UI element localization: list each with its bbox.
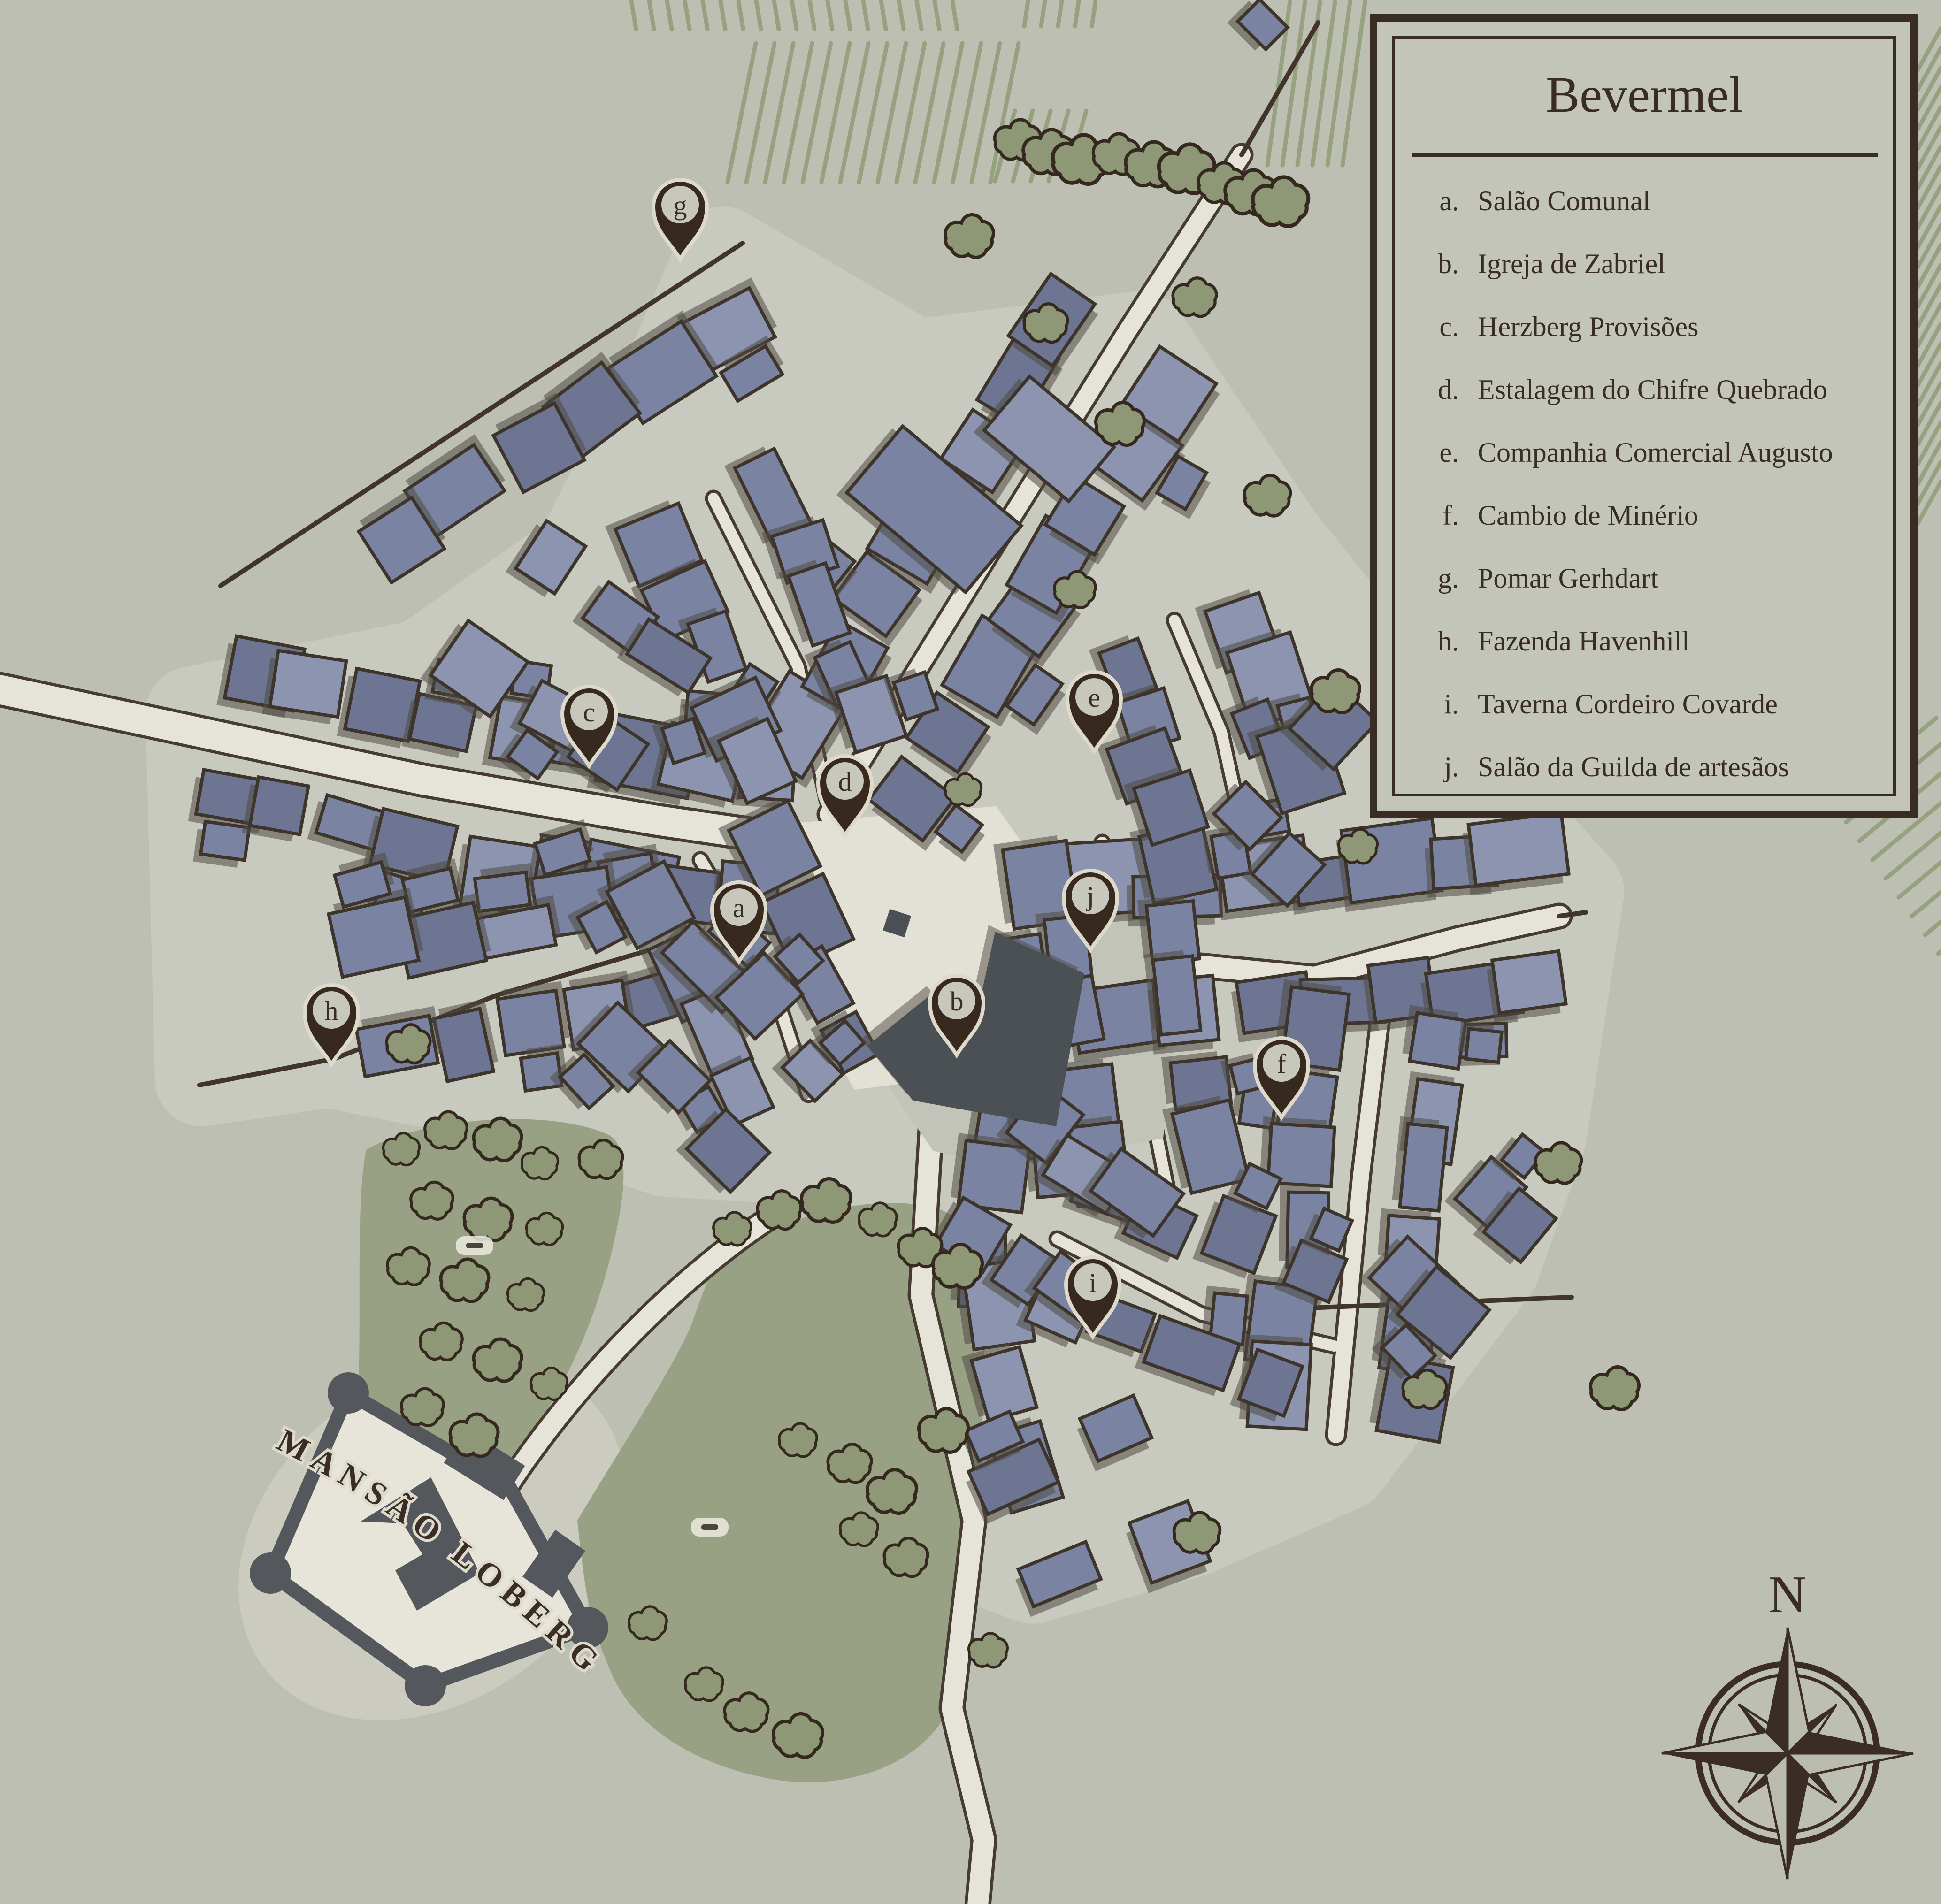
legend-item-key: g. <box>1438 563 1459 594</box>
building <box>1400 1124 1447 1211</box>
pin-letter: i <box>1089 1268 1097 1298</box>
building <box>201 821 249 860</box>
pin-letter: g <box>674 190 687 221</box>
pin-letter: d <box>838 766 852 797</box>
pin-letter: c <box>583 697 595 727</box>
pin-letter: h <box>325 995 338 1026</box>
legend-item-key: a. <box>1439 185 1459 216</box>
building <box>475 872 530 911</box>
legend-item-key: c. <box>1439 311 1459 342</box>
pin-letter: j <box>1086 881 1094 911</box>
legend-item-i: i.Taverna Cordeiro Covarde <box>1444 688 1778 719</box>
building <box>1468 813 1569 886</box>
legend-item-label: Estalagem do Chifre Quebrado <box>1478 374 1827 405</box>
legend-panel: Bevermel a.Salão Comunalb.Igreja de Zabr… <box>1373 18 1914 815</box>
building <box>270 650 346 717</box>
legend-item-label: Pomar Gerhdart <box>1478 563 1658 594</box>
building <box>1410 1013 1466 1069</box>
park-marker <box>691 1518 729 1537</box>
pin-letter: b <box>950 986 964 1017</box>
legend-item-label: Igreja de Zabriel <box>1478 248 1665 279</box>
mansion-tower <box>405 1665 446 1706</box>
legend-item-label: Fazenda Havenhill <box>1478 626 1690 657</box>
pin-letter: f <box>1277 1048 1286 1079</box>
legend-item-label: Taverna Cordeiro Covarde <box>1478 688 1778 719</box>
pin-letter: a <box>733 893 745 923</box>
building <box>1466 1029 1502 1063</box>
pin-letter: e <box>1088 682 1100 713</box>
legend-item-j: j.Salão da Guilda de artesãos <box>1443 751 1789 782</box>
building <box>250 777 308 834</box>
legend-item-c: c.Herzberg Provisões <box>1439 311 1698 342</box>
legend-item-key: j. <box>1443 751 1459 782</box>
legend-item-key: f. <box>1442 500 1459 531</box>
legend-item-label: Salão da Guilda de artesãos <box>1478 751 1789 782</box>
mansion-tower <box>250 1552 291 1594</box>
compass-north-label: N <box>1769 1566 1807 1624</box>
legend-item-key: b. <box>1438 248 1459 279</box>
park-marker <box>456 1236 493 1255</box>
building <box>1153 956 1201 1035</box>
bevermel-map-canvas: MANSÃO LOBERG abcdefghij Bevermel a.Salã… <box>0 0 1941 1904</box>
legend-item-key: d. <box>1438 374 1459 405</box>
building <box>1492 951 1566 1013</box>
village-map-page: MANSÃO LOBERG abcdefghij Bevermel a.Salã… <box>0 0 1941 1904</box>
legend-title: Bevermel <box>1546 67 1743 123</box>
mansion-tower <box>328 1372 369 1414</box>
legend-item-label: Herzberg Provisões <box>1478 311 1698 342</box>
legend-item-key: h. <box>1438 626 1459 657</box>
legend-item-label: Cambio de Minério <box>1478 500 1698 531</box>
legend-item-d: d.Estalagem do Chifre Quebrado <box>1438 374 1827 405</box>
legend-item-e: e.Companhia Comercial Augusto <box>1439 437 1833 468</box>
legend-item-label: Salão Comunal <box>1478 185 1650 216</box>
legend-item-label: Companhia Comercial Augusto <box>1478 437 1833 468</box>
legend-item-key: i. <box>1444 688 1459 719</box>
legend-item-f: f.Cambio de Minério <box>1442 500 1698 531</box>
legend-item-key: e. <box>1439 437 1459 468</box>
